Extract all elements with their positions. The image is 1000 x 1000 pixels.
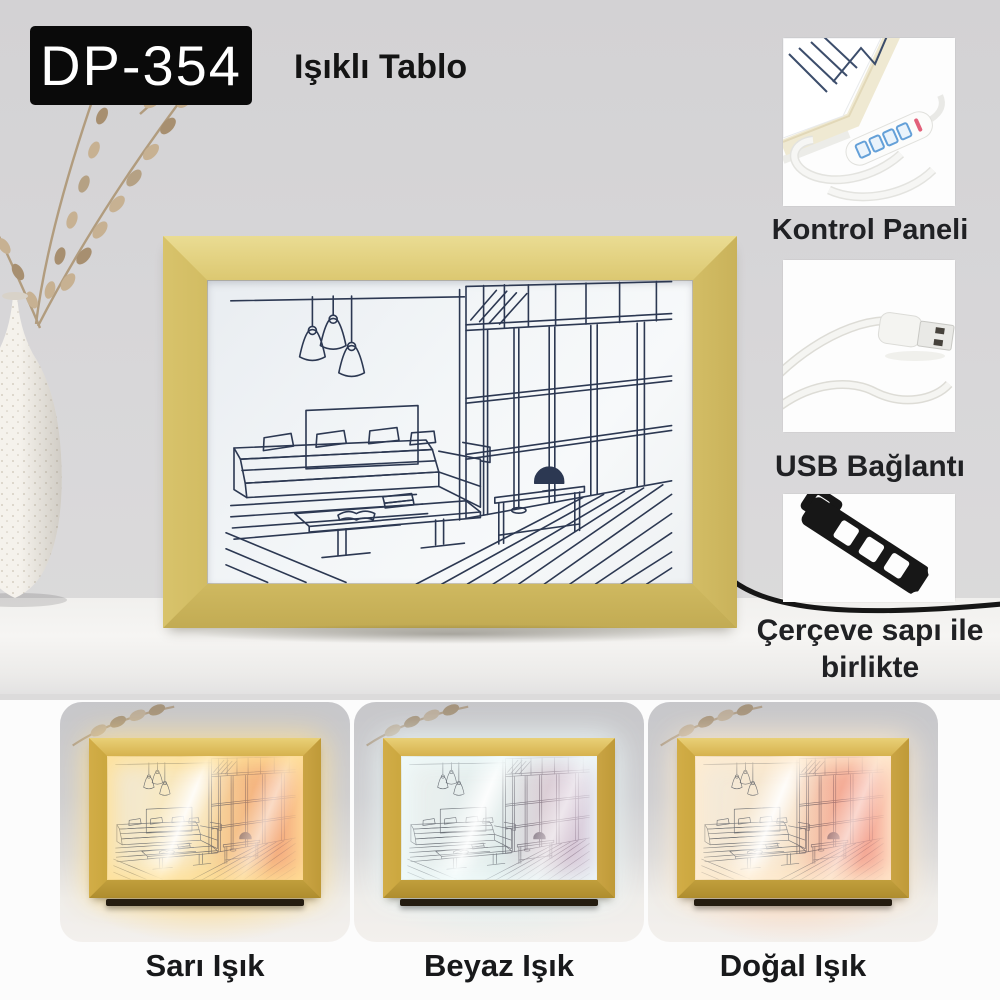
variant-card-natural-light bbox=[648, 702, 938, 942]
usb-plug-icon bbox=[783, 260, 955, 432]
light-panel bbox=[107, 756, 303, 880]
frame-bevel-top bbox=[89, 738, 321, 756]
variant-label-white-light: Beyaz Işık bbox=[354, 948, 644, 984]
wooden-frame-mini bbox=[383, 738, 615, 898]
frame-bevel-left bbox=[163, 236, 207, 628]
variant-card-yellow-light bbox=[60, 702, 350, 942]
frame-bevel-top bbox=[677, 738, 909, 756]
frame-stand-icon bbox=[783, 494, 955, 602]
wooden-frame-mini bbox=[677, 738, 909, 898]
frame-bevel-bottom bbox=[677, 880, 909, 898]
light-panel bbox=[695, 756, 891, 880]
variant-card-white-light bbox=[354, 702, 644, 942]
lit-frame-white bbox=[383, 738, 615, 898]
lit-frame-yellow bbox=[89, 738, 321, 898]
wooden-frame-mini bbox=[89, 738, 321, 898]
frame-bevel-right bbox=[891, 738, 909, 898]
light-panel bbox=[207, 280, 693, 584]
frame-bevel-bottom bbox=[383, 880, 615, 898]
light-panel bbox=[401, 756, 597, 880]
frame-base bbox=[106, 899, 304, 906]
wooden-frame bbox=[163, 236, 737, 628]
frame-bevel-right bbox=[693, 236, 737, 628]
feature-label-usb: USB Bağlantı bbox=[758, 450, 982, 484]
feature-photo-usb bbox=[783, 260, 955, 432]
product-photo-main bbox=[163, 236, 737, 628]
feature-photo-control-panel bbox=[783, 38, 955, 206]
vase bbox=[0, 292, 90, 610]
feature-photo-frame-stand bbox=[783, 494, 955, 602]
model-badge: DP-354 bbox=[30, 26, 252, 105]
feature-label-frame-stand: Çerçeve sapı ile birlikte bbox=[752, 612, 988, 686]
inner-glow-overlay bbox=[401, 756, 597, 880]
frame-base bbox=[694, 899, 892, 906]
living-room-line-art bbox=[207, 280, 693, 584]
frame-bevel-left bbox=[677, 738, 695, 898]
frame-bevel-left bbox=[383, 738, 401, 898]
frame-bevel-left bbox=[89, 738, 107, 898]
variant-label-natural-light: Doğal Işık bbox=[648, 948, 938, 984]
inner-glow-overlay bbox=[695, 756, 891, 880]
frame-base bbox=[400, 899, 598, 906]
frame-bevel-bottom bbox=[163, 584, 737, 628]
variant-label-yellow-light: Sarı Işık bbox=[60, 948, 350, 984]
frame-bevel-right bbox=[597, 738, 615, 898]
model-badge-text: DP-354 bbox=[40, 33, 242, 98]
frame-bevel-bottom bbox=[89, 880, 321, 898]
product-infographic: DP-354 Işıklı Tablo bbox=[0, 0, 1000, 1000]
lit-frame-natural bbox=[677, 738, 909, 898]
control-panel-icon bbox=[783, 38, 955, 206]
frame-bevel-right bbox=[303, 738, 321, 898]
feature-label-control-panel: Kontrol Paneli bbox=[758, 214, 982, 247]
frame-bevel-top bbox=[163, 236, 737, 280]
frame-bevel-top bbox=[383, 738, 615, 756]
inner-glow-overlay bbox=[107, 756, 303, 880]
page-title: Işıklı Tablo bbox=[294, 48, 467, 87]
